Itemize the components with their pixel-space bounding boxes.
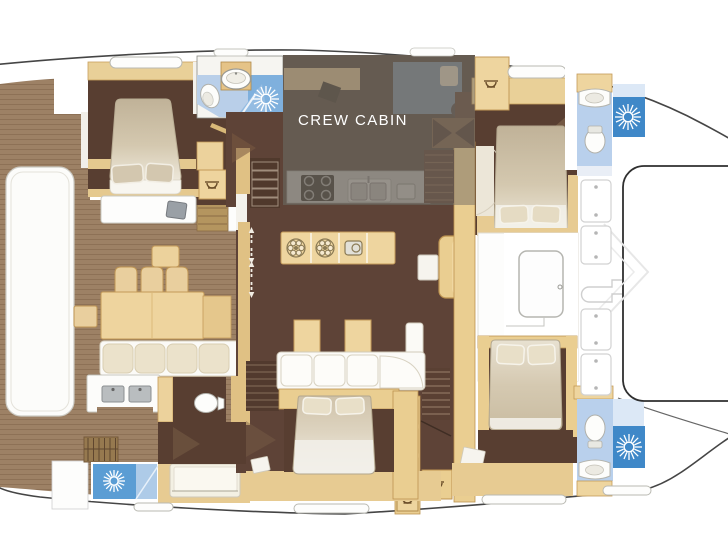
svg-text:CREW CABIN: CREW CABIN [298, 112, 408, 129]
